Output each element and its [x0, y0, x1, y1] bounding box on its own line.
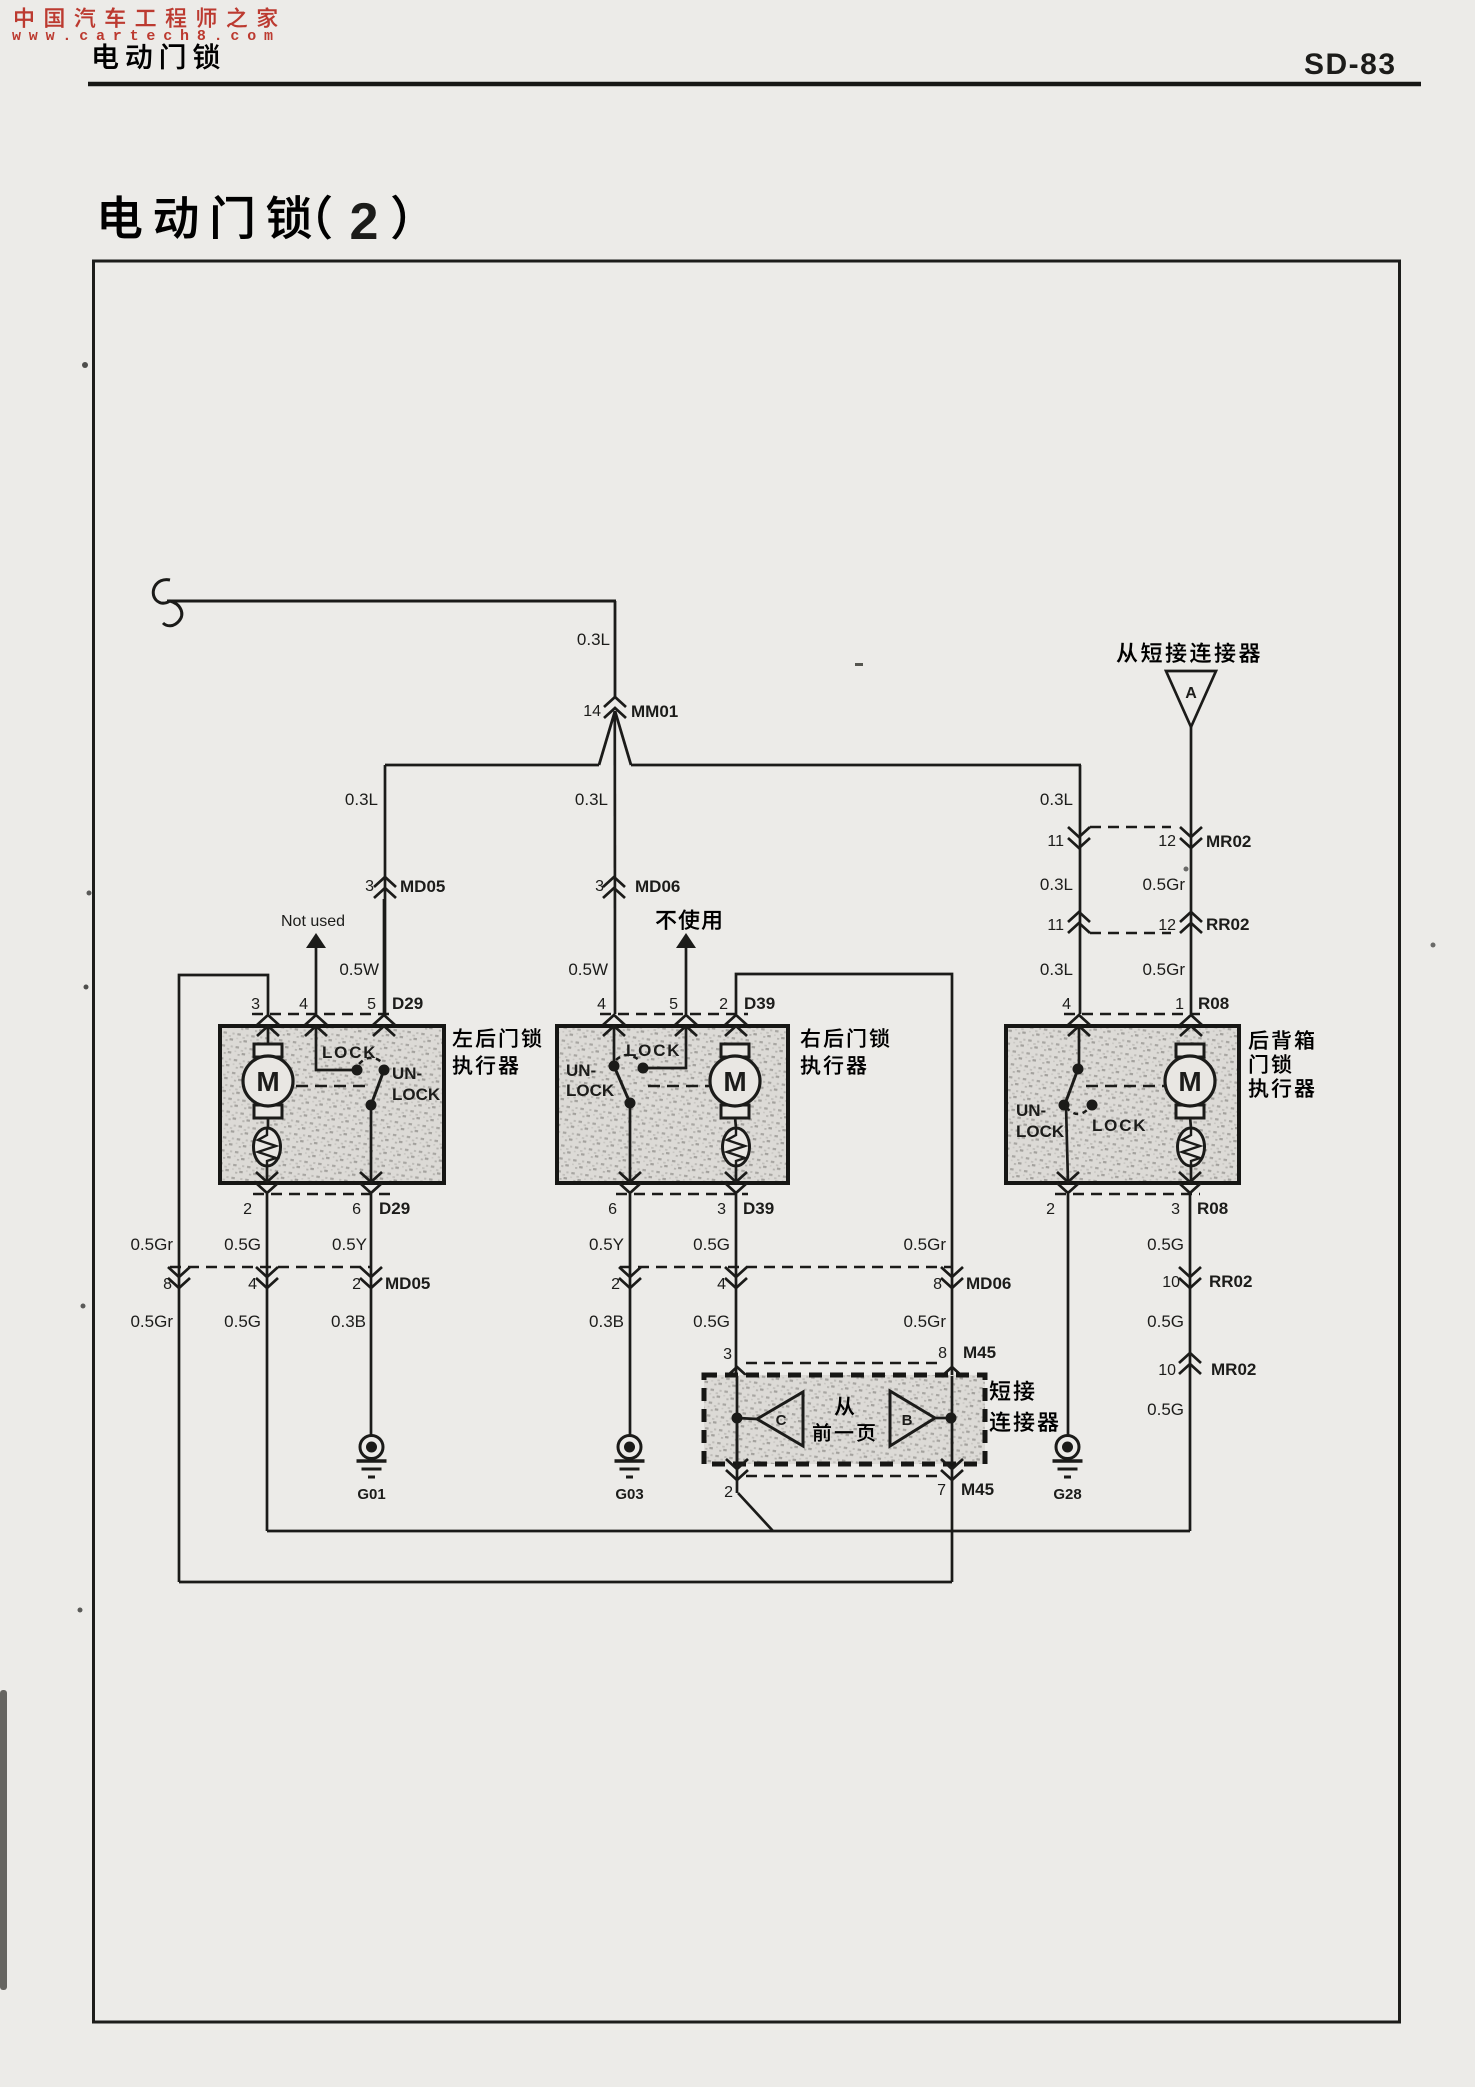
svg-text:0.5G: 0.5G	[1147, 1400, 1184, 1419]
svg-text:UN-: UN-	[566, 1061, 596, 1080]
svg-text:M: M	[723, 1066, 746, 1097]
svg-text:RR02: RR02	[1206, 915, 1249, 934]
svg-text:0.5Gr: 0.5Gr	[130, 1235, 173, 1254]
svg-text:MD05: MD05	[385, 1274, 430, 1293]
svg-text:G28: G28	[1053, 1486, 1081, 1503]
svg-text:0.5G: 0.5G	[693, 1312, 730, 1331]
svg-text:0.5Gr: 0.5Gr	[903, 1312, 946, 1331]
svg-text:3: 3	[365, 878, 374, 895]
svg-text:5: 5	[669, 996, 678, 1013]
svg-text:0.5G: 0.5G	[1147, 1235, 1184, 1254]
svg-text:3: 3	[723, 1346, 732, 1363]
svg-text:LOCK: LOCK	[566, 1081, 615, 1100]
svg-text:1: 1	[1175, 996, 1184, 1013]
svg-text:D39: D39	[743, 1199, 774, 1218]
svg-text:0.5W: 0.5W	[568, 960, 608, 979]
svg-text:0.3B: 0.3B	[589, 1312, 624, 1331]
svg-text:M45: M45	[961, 1480, 994, 1499]
svg-text:R08: R08	[1197, 1199, 1228, 1218]
svg-text:2: 2	[350, 193, 379, 251]
svg-text:www.cartech8.com: www.cartech8.com	[12, 28, 281, 45]
svg-text:Not used: Not used	[281, 913, 345, 930]
svg-text:2: 2	[243, 1201, 252, 1218]
svg-text:D29: D29	[379, 1199, 410, 1218]
svg-text:D39: D39	[744, 994, 775, 1013]
svg-text:11: 11	[1047, 917, 1064, 934]
svg-text:SD-83: SD-83	[1304, 48, 1397, 81]
svg-text:3: 3	[251, 996, 260, 1013]
svg-text:0.5Gr: 0.5Gr	[1142, 960, 1185, 979]
svg-text:0.5Y: 0.5Y	[332, 1235, 367, 1254]
svg-text:B: B	[902, 1412, 913, 1429]
svg-text:0.5Gr: 0.5Gr	[1142, 875, 1185, 894]
svg-text:8: 8	[938, 1345, 947, 1362]
svg-text:6: 6	[608, 1201, 617, 1218]
svg-text:3: 3	[717, 1201, 726, 1218]
svg-text:0.5Gr: 0.5Gr	[903, 1235, 946, 1254]
svg-text:2: 2	[1046, 1201, 1055, 1218]
svg-text:3: 3	[595, 878, 604, 895]
svg-text:0.5G: 0.5G	[1147, 1312, 1184, 1331]
svg-text:12: 12	[1158, 917, 1176, 934]
svg-text:3: 3	[1171, 1201, 1180, 1218]
svg-text:0.5Y: 0.5Y	[589, 1235, 624, 1254]
svg-text:C: C	[776, 1412, 787, 1429]
svg-text:0.3L: 0.3L	[1040, 960, 1073, 979]
svg-text:4: 4	[597, 996, 606, 1013]
svg-text:4: 4	[717, 1276, 726, 1293]
svg-text:8: 8	[933, 1276, 942, 1293]
svg-text:G03: G03	[615, 1486, 643, 1503]
svg-text:MR02: MR02	[1211, 1360, 1256, 1379]
svg-text:8: 8	[163, 1276, 172, 1293]
svg-text:2: 2	[352, 1276, 361, 1293]
svg-text:MD05: MD05	[400, 877, 445, 896]
svg-text:R08: R08	[1198, 994, 1229, 1013]
svg-text:0.3L: 0.3L	[345, 790, 378, 809]
svg-text:0.5Gr: 0.5Gr	[130, 1312, 173, 1331]
svg-text:0.3L: 0.3L	[575, 790, 608, 809]
svg-text:D29: D29	[392, 994, 423, 1013]
svg-text:5: 5	[367, 996, 376, 1013]
svg-text:7: 7	[937, 1482, 946, 1499]
svg-text:MM01: MM01	[631, 702, 678, 721]
svg-text:2: 2	[719, 996, 728, 1013]
svg-text:10: 10	[1162, 1274, 1180, 1291]
svg-text:12: 12	[1158, 833, 1176, 850]
svg-text:MD06: MD06	[966, 1274, 1011, 1293]
svg-text:6: 6	[352, 1201, 361, 1218]
svg-text:LOCK: LOCK	[392, 1085, 441, 1104]
svg-text:0.3B: 0.3B	[331, 1312, 366, 1331]
svg-text:0.3L: 0.3L	[577, 630, 610, 649]
svg-text:14: 14	[583, 703, 601, 720]
svg-text:LOCK: LOCK	[1092, 1116, 1147, 1135]
svg-text:0.5G: 0.5G	[224, 1235, 261, 1254]
svg-text:A: A	[1185, 685, 1197, 702]
svg-text:11: 11	[1047, 833, 1064, 850]
svg-text:0.5W: 0.5W	[339, 960, 379, 979]
svg-text:2: 2	[724, 1484, 733, 1501]
svg-text:M45: M45	[963, 1343, 996, 1362]
svg-text:4: 4	[248, 1276, 257, 1293]
svg-text:MR02: MR02	[1206, 832, 1251, 851]
svg-text:UN-: UN-	[392, 1064, 422, 1083]
svg-text:LOCK: LOCK	[1016, 1122, 1065, 1141]
svg-text:0.5G: 0.5G	[693, 1235, 730, 1254]
svg-text:10: 10	[1158, 1362, 1176, 1379]
svg-text:M: M	[256, 1066, 279, 1097]
svg-text:0.3L: 0.3L	[1040, 790, 1073, 809]
svg-text:2: 2	[611, 1276, 620, 1293]
svg-text:MD06: MD06	[635, 877, 680, 896]
svg-text:M: M	[1178, 1066, 1201, 1097]
svg-text:G01: G01	[357, 1486, 385, 1503]
svg-text:4: 4	[299, 996, 308, 1013]
svg-text:0.5G: 0.5G	[224, 1312, 261, 1331]
svg-text:0.3L: 0.3L	[1040, 875, 1073, 894]
svg-text:RR02: RR02	[1209, 1272, 1252, 1291]
svg-text:UN-: UN-	[1016, 1101, 1046, 1120]
svg-text:4: 4	[1062, 996, 1071, 1013]
